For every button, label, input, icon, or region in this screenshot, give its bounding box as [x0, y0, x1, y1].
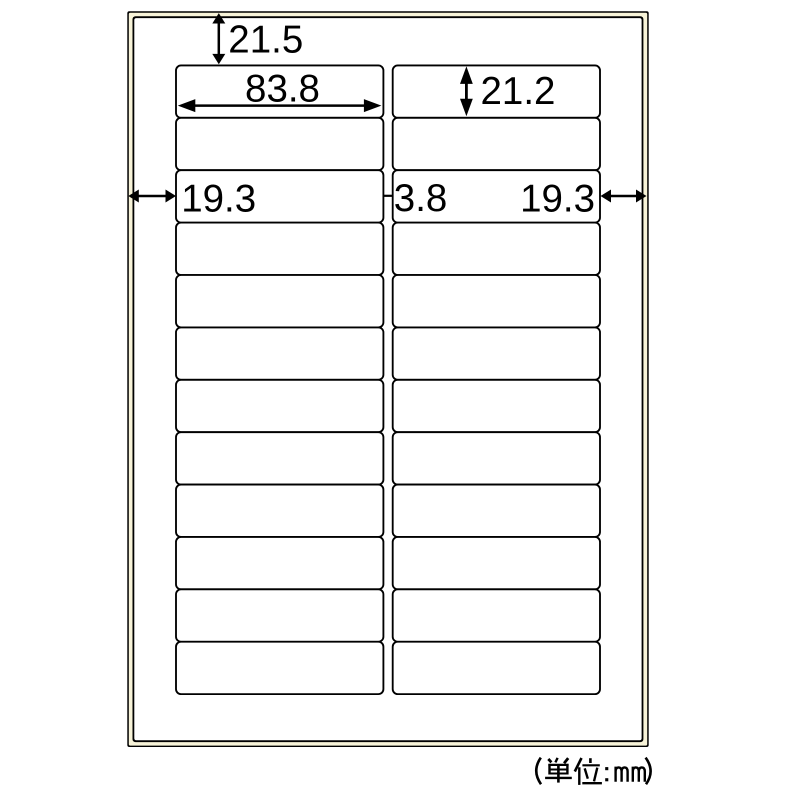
svg-text:19.3: 19.3: [181, 177, 256, 220]
svg-text:21.2: 21.2: [481, 70, 556, 113]
svg-text:3.8: 3.8: [394, 177, 448, 220]
svg-text:19.3: 19.3: [520, 177, 595, 220]
svg-text:83.8: 83.8: [245, 67, 320, 110]
svg-text:21.5: 21.5: [228, 19, 303, 62]
